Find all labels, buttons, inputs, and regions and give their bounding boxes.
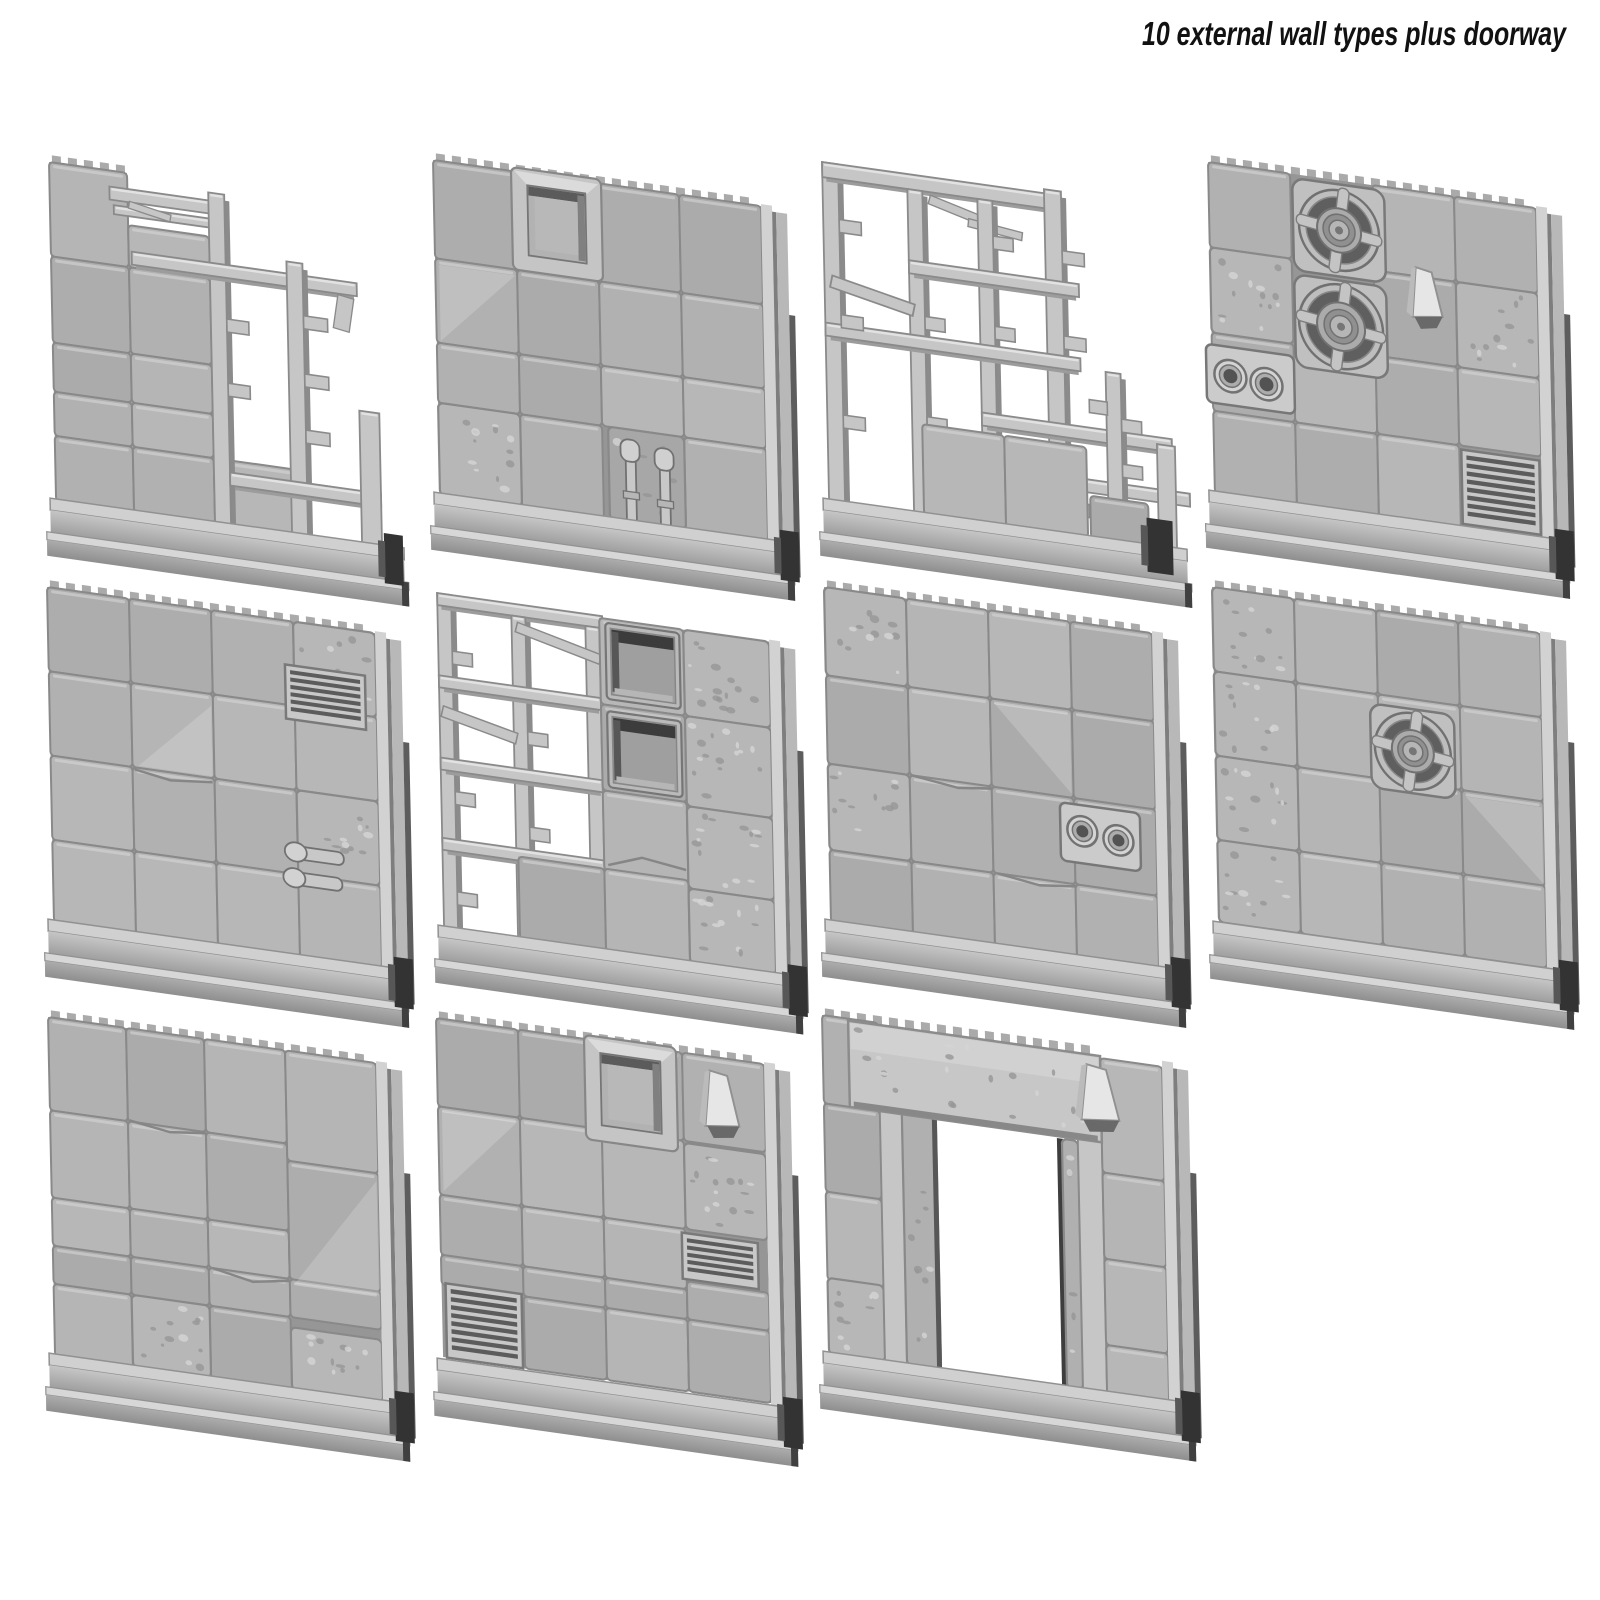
svg-text:10 external wall types plus do: 10 external wall types plus doorway xyxy=(1142,15,1567,52)
